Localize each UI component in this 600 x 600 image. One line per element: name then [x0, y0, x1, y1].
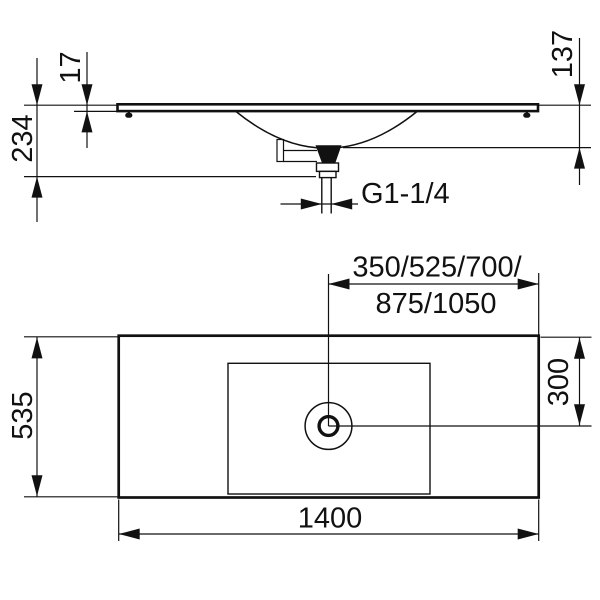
clip-knob — [125, 113, 132, 118]
drain-collar-upper — [317, 163, 339, 171]
dimension-label-offsets-line2: 875/1050 — [376, 288, 497, 320]
dimension-label-1400: 1400 — [298, 503, 363, 535]
dimension-label-300: 300 — [543, 358, 575, 406]
drain-collar — [317, 163, 339, 178]
dimension-label-535: 535 — [7, 391, 39, 439]
clip-knob — [523, 113, 530, 118]
dimension-label-thread: G1-1/4 — [361, 178, 450, 210]
drain-collar-lower — [320, 171, 337, 177]
dimension-label-offsets-line1: 350/525/700/ — [352, 252, 522, 284]
dimension-label-17: 17 — [55, 51, 87, 83]
countertop-slab-section — [118, 104, 539, 111]
dimension-label-137: 137 — [547, 30, 579, 78]
dimension-label-234: 234 — [7, 114, 39, 162]
washbasin-technical-drawing: 17 234 137 G1-1/4 — [0, 0, 600, 600]
